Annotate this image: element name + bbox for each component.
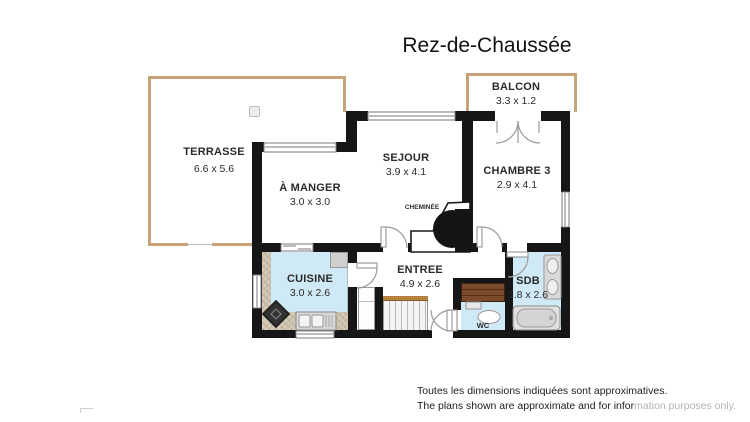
wall-segment — [453, 330, 570, 338]
balcony-border-right — [574, 73, 577, 112]
floor-plan-page: Rez-de-Chaussée — [0, 0, 750, 422]
wall-segment — [348, 252, 357, 263]
wall-segment — [505, 252, 513, 330]
wall-segment — [348, 287, 357, 330]
french-door-arc — [496, 121, 518, 143]
wall-segment — [252, 243, 281, 252]
french-door-arc — [518, 121, 540, 143]
staircase — [383, 296, 428, 332]
window — [368, 112, 455, 120]
terrace-light-fixture — [249, 106, 260, 117]
window — [264, 143, 336, 152]
door-swing-arc — [357, 268, 377, 288]
terrace-border-right — [343, 76, 346, 112]
entry-bench — [461, 283, 505, 302]
pass-through-window — [281, 244, 313, 251]
page-title: Rez-de-Chaussée — [337, 34, 637, 58]
door-swing-arc — [431, 310, 452, 331]
plan-overlay — [0, 0, 750, 422]
disclaimer-line1: Toutes les dimensions indiquées sont app… — [417, 384, 736, 399]
wall-segment — [527, 243, 570, 252]
wall-segment — [408, 243, 478, 252]
room-label-a-manger: À MANGER 3.0 x 3.0 — [250, 181, 370, 209]
wall-segment — [502, 243, 507, 252]
disclaimer-text: Toutes les dimensions indiquées sont app… — [417, 384, 736, 413]
door-swing-arc — [386, 227, 407, 248]
terrace-border-left — [148, 76, 151, 246]
window — [562, 192, 569, 227]
hall-closet-divider — [359, 301, 374, 302]
hall-closet — [358, 287, 375, 330]
door-leaf — [357, 263, 377, 268]
wall-segment — [455, 111, 495, 121]
wall-segment — [252, 142, 262, 338]
wall-segment — [561, 111, 570, 192]
wall-segment — [252, 330, 296, 338]
room-label-balcon: BALCON 3.3 x 1.2 — [456, 80, 576, 108]
wall-segment — [313, 243, 383, 252]
staircase-handrail — [383, 296, 428, 301]
door-swing-arc — [482, 227, 502, 247]
door-leaf — [447, 310, 452, 331]
kitchen-stove — [330, 252, 348, 268]
terrace-border-top — [148, 76, 346, 79]
room-label-chambre3: CHAMBRE 3 2.9 x 4.1 — [457, 164, 577, 192]
room-label-cheminee: CHEMINÉE — [392, 204, 452, 211]
wc-floor — [461, 300, 505, 330]
watermark-remnant — [80, 408, 93, 413]
wall-segment — [375, 287, 383, 330]
door-leaf — [452, 310, 457, 331]
wall-segment — [462, 121, 473, 243]
terrace-step-line — [188, 244, 212, 245]
wall-segment — [334, 330, 432, 338]
disclaimer-line2: The plans shown are approximate and for … — [417, 399, 736, 414]
room-label-sejour: SEJOUR 3.9 x 4.1 — [346, 151, 466, 179]
door-swing-arc — [431, 310, 452, 331]
window — [296, 331, 334, 338]
bathroom-floor — [513, 252, 561, 330]
wall-segment — [336, 142, 357, 152]
balcony-border-left — [466, 73, 469, 112]
wall-segment — [453, 278, 505, 283]
balcony-border-top — [466, 73, 577, 76]
